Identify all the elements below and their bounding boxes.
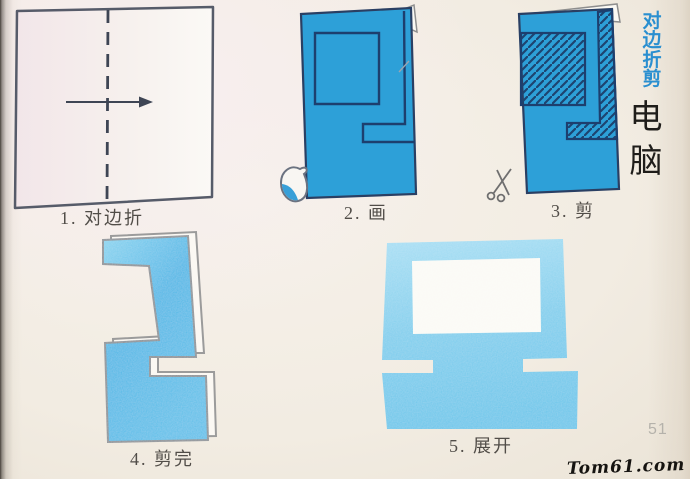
scissors-icon <box>488 169 511 201</box>
hatched-screen-area <box>521 33 585 105</box>
fold-dashed-line <box>107 10 108 201</box>
side-caption: 对边折剪 <box>641 12 663 90</box>
step5-label: 5. 展开 <box>421 432 541 458</box>
paper-square <box>15 7 213 208</box>
page-title: 电脑 <box>627 97 665 184</box>
craft-diagram <box>0 0 690 479</box>
screen-cutout <box>412 258 541 334</box>
step1-fold-diagram <box>15 7 213 208</box>
page-number: 51 <box>648 421 668 439</box>
step5-unfolded-computer <box>382 239 578 429</box>
step3-label: 3. 剪 <box>518 197 628 223</box>
step4-label: 4. 剪完 <box>102 445 222 471</box>
step2-draw-diagram <box>281 5 417 201</box>
step3-cut-diagram <box>488 4 620 201</box>
step4-cut-result <box>103 232 216 442</box>
pen-nib-icon <box>281 167 307 201</box>
step2-label: 2. 画 <box>311 199 421 225</box>
scanned-book-page: 1. 对边折 2. 画 3. 剪 4. 剪完 5. 展开 对边折剪 电脑 51 … <box>0 0 690 479</box>
step1-label: 1. 对边折 <box>37 204 167 230</box>
watermark: Tom61.com <box>566 455 685 479</box>
